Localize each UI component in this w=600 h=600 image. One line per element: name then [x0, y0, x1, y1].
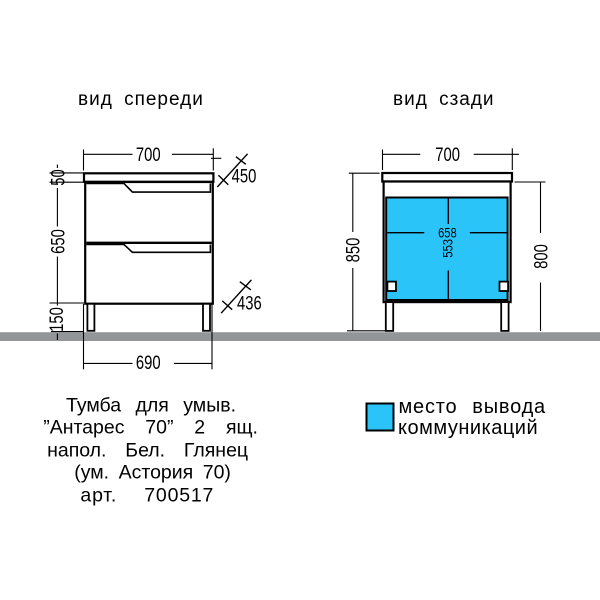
svg-text:436: 436 — [237, 293, 262, 314]
svg-text:850: 850 — [343, 238, 364, 263]
svg-text:650: 650 — [48, 229, 69, 254]
svg-text:700: 700 — [435, 144, 460, 165]
svg-text:658: 658 — [438, 225, 457, 240]
svg-text:Тумба для умыв.: Тумба для умыв. — [66, 395, 236, 417]
svg-text:место вывода: место вывода — [399, 396, 547, 418]
svg-text:”Антарес 70” 2 ящ.: ”Антарес 70” 2 ящ. — [43, 417, 258, 439]
svg-text:690: 690 — [136, 352, 161, 373]
svg-text:арт. 700517: арт. 700517 — [80, 485, 214, 507]
svg-text:553: 553 — [440, 239, 455, 258]
svg-text:450: 450 — [232, 166, 257, 187]
svg-text:коммуникаций: коммуникаций — [398, 417, 538, 439]
svg-text:вид спереди: вид спереди — [78, 89, 204, 110]
svg-text:800: 800 — [531, 244, 552, 269]
svg-text:700: 700 — [136, 144, 161, 165]
svg-text:вид сзади: вид сзади — [393, 89, 495, 110]
svg-text:напол. Бел. Глянец: напол. Бел. Глянец — [47, 440, 248, 462]
svg-text:(ум. Астория 70): (ум. Астория 70) — [74, 462, 231, 484]
svg-text:150: 150 — [46, 307, 67, 332]
svg-text:50: 50 — [48, 169, 69, 185]
